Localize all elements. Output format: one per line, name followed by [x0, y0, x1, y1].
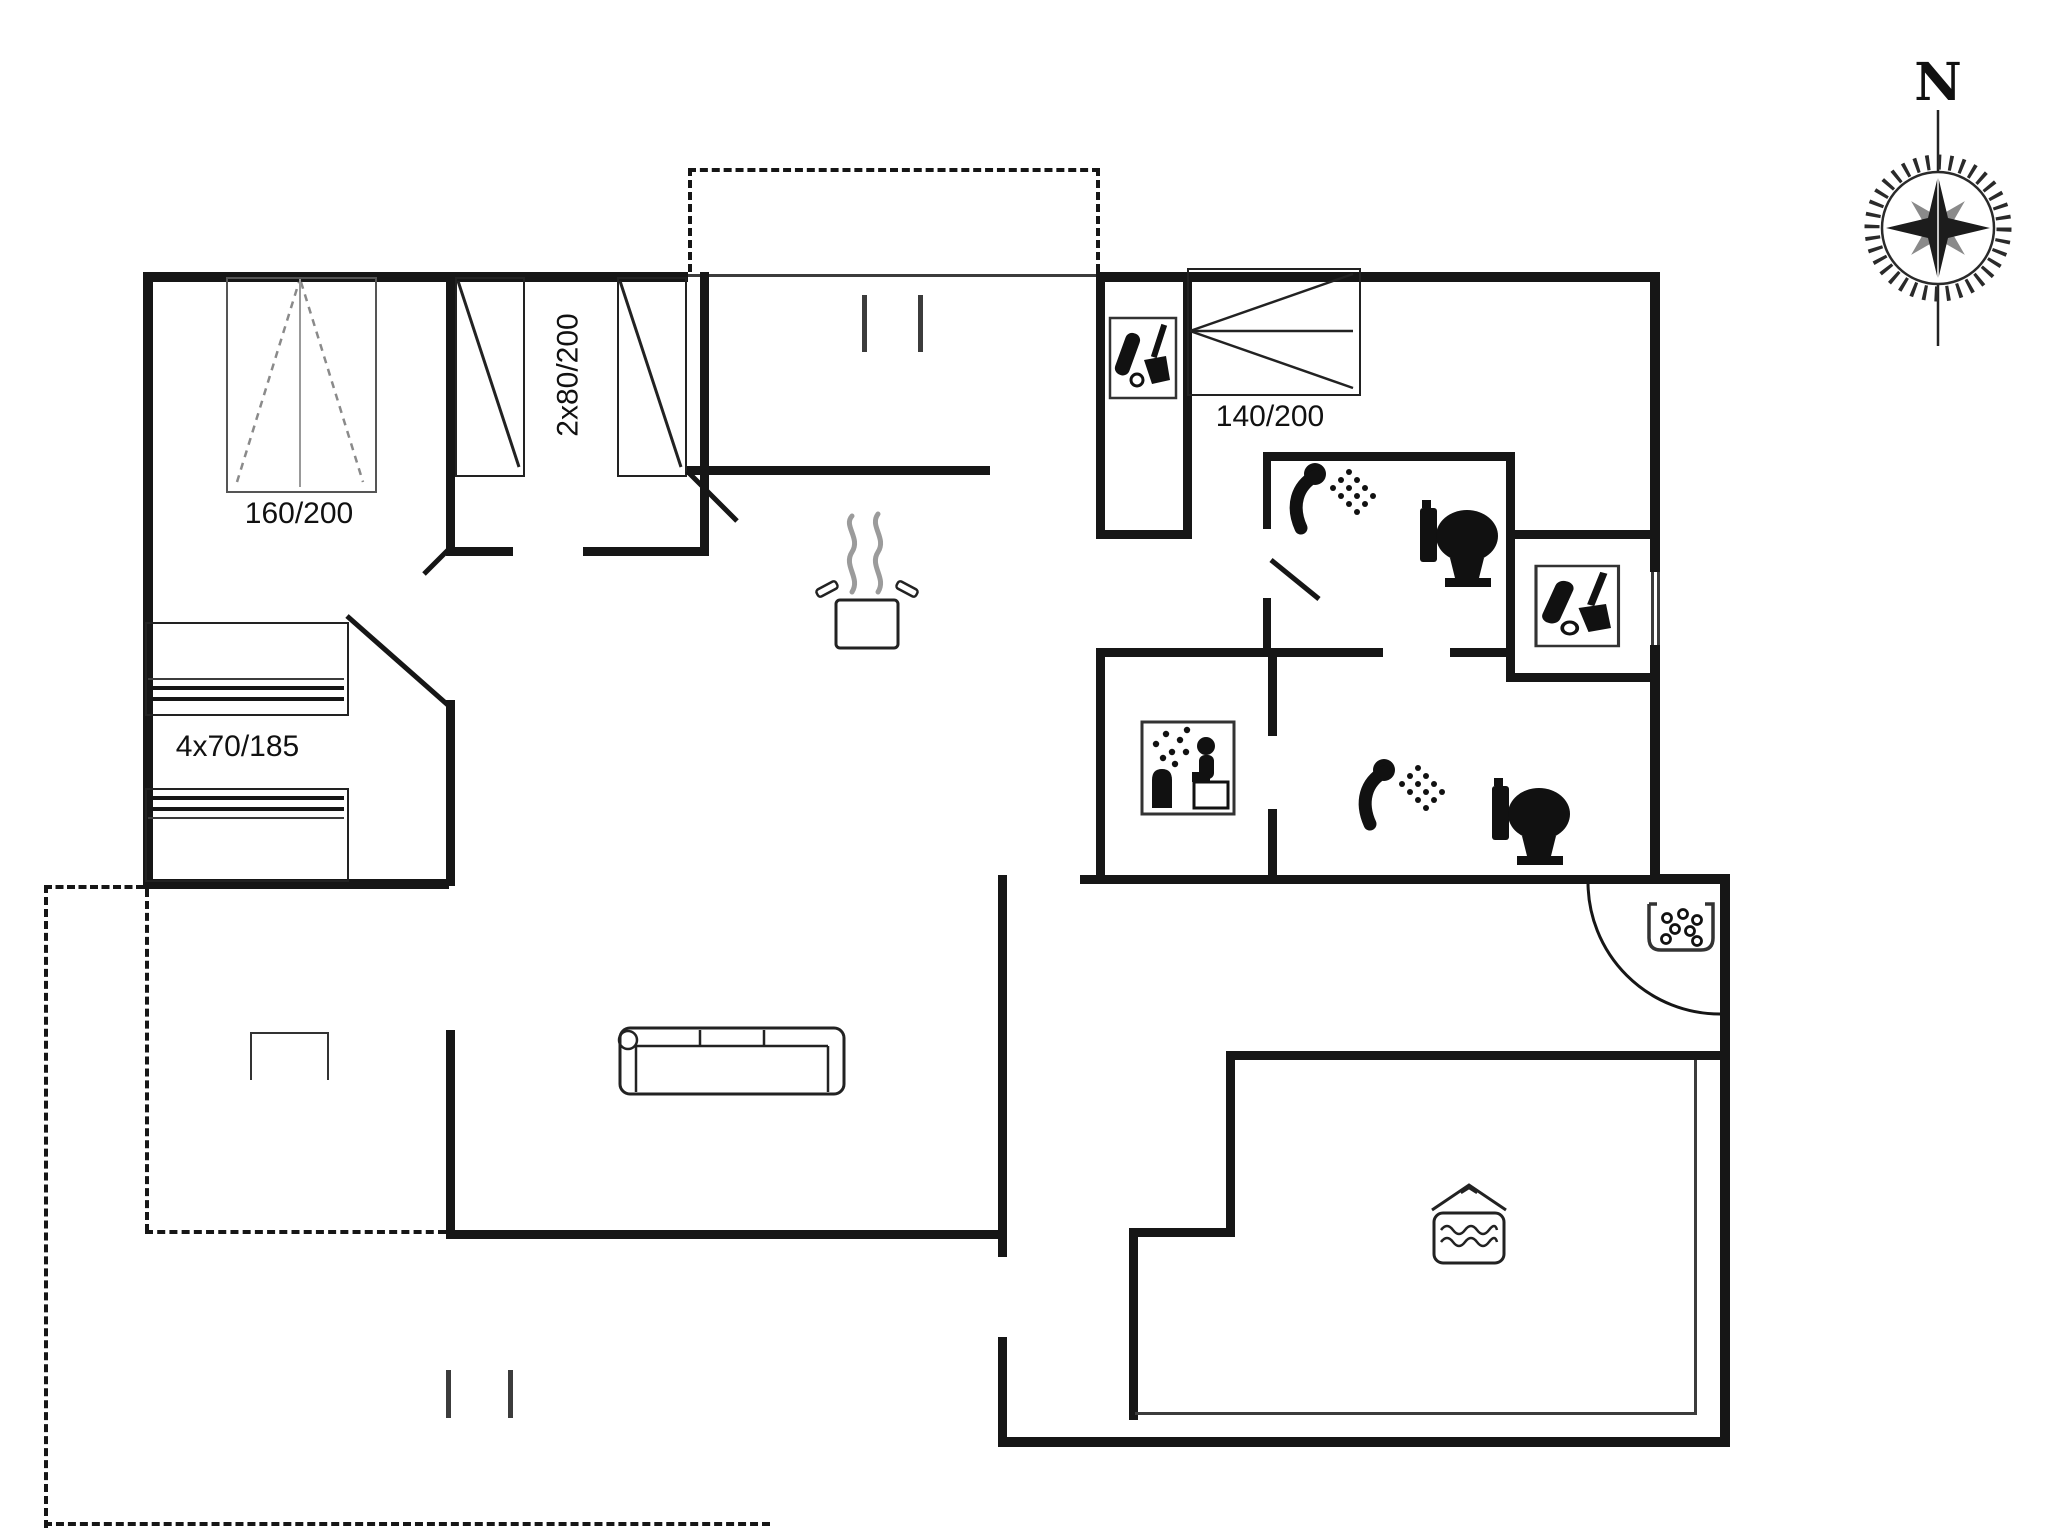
compass-rose-icon: N	[1872, 52, 2004, 346]
sofa-icon	[619, 1028, 844, 1094]
compass-north-label: N	[1914, 52, 1962, 113]
plan-graphics: N	[0, 0, 2048, 1536]
hot-tub-icon	[1432, 1185, 1506, 1263]
cleaning-cupboard-icon	[1110, 318, 1176, 398]
shower-icon	[1296, 463, 1376, 528]
floor-plan: N 160/200 2x80/200 140/200 4x70/185	[0, 0, 2048, 1536]
bed-size-label: 140/200	[1200, 402, 1340, 432]
bed-140-pattern	[1190, 274, 1353, 388]
toilet-icon	[1492, 778, 1570, 865]
door-swing-line	[347, 471, 1319, 706]
shower-icon	[1365, 759, 1445, 824]
bed-size-label: 2x80/200	[554, 303, 584, 448]
bed-size-label: 4x70/185	[160, 732, 315, 762]
cleaning-cupboard-icon	[1536, 566, 1619, 646]
sauna-icon	[1142, 722, 1234, 814]
stove-pot-icon	[815, 514, 918, 648]
bed-size-label: 160/200	[229, 499, 369, 529]
toilet-icon	[1420, 500, 1498, 587]
sink-icon	[1649, 904, 1713, 950]
